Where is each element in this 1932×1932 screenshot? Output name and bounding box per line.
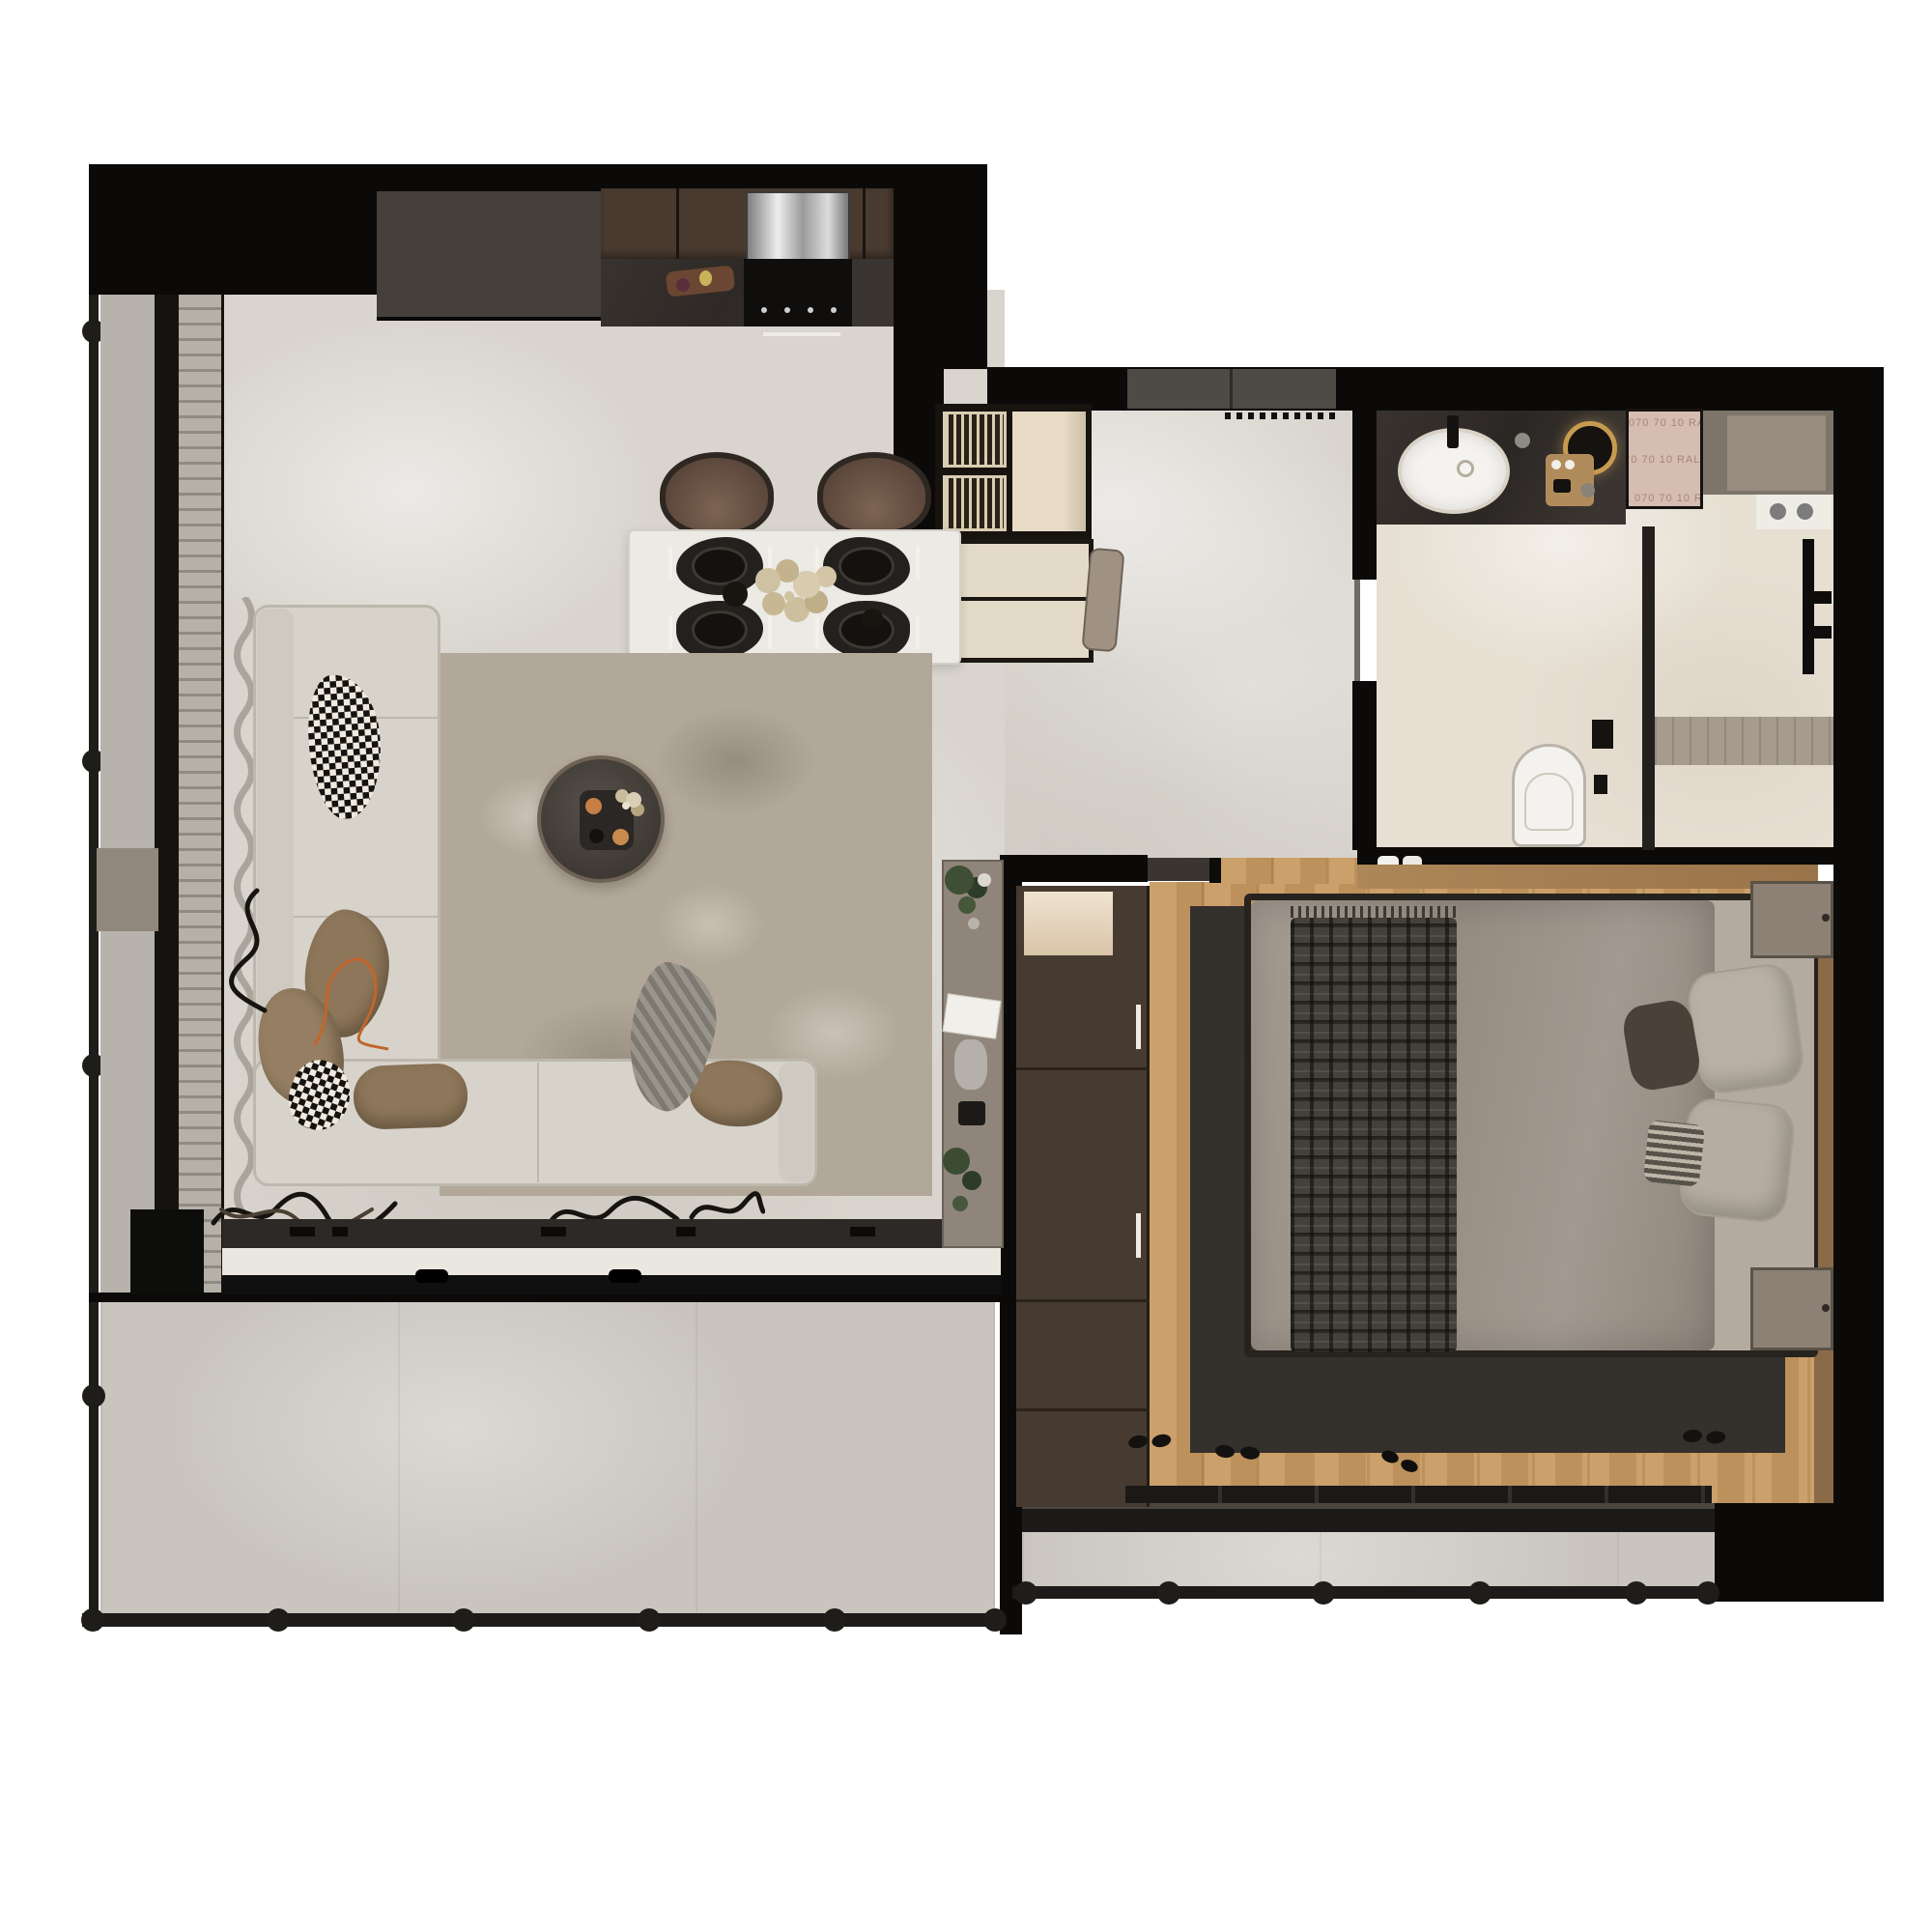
plant-leaves bbox=[945, 866, 974, 895]
left-window-sill bbox=[176, 295, 224, 1299]
cutlery bbox=[916, 616, 920, 649]
sofa-seat-seam bbox=[537, 1063, 539, 1182]
railing-post bbox=[267, 1608, 290, 1632]
counter-edge-line bbox=[763, 332, 840, 336]
shower-mixer-knob bbox=[1814, 626, 1832, 639]
black-tray bbox=[958, 1101, 985, 1125]
railing-post bbox=[1468, 1581, 1492, 1605]
cooktop-knob bbox=[808, 307, 813, 313]
terrace-floor bbox=[100, 1299, 995, 1618]
cooktop-knob bbox=[784, 307, 790, 313]
fruit-pear bbox=[699, 270, 712, 286]
sink-drain bbox=[1457, 460, 1474, 477]
cooktop bbox=[744, 259, 852, 327]
tan-bolster-pillow bbox=[353, 1063, 469, 1130]
orange-thread-decor bbox=[307, 949, 396, 1053]
cutlery bbox=[768, 616, 772, 649]
ral-label-row: RAL 070 70 10 RAL 070 70 10 bbox=[1626, 493, 1703, 504]
ral-label-row: RAL 070 70 10 RAL 070 70 10 bbox=[1626, 454, 1703, 466]
wardrobe bbox=[1016, 886, 1150, 1507]
range-hood bbox=[746, 191, 850, 261]
plate bbox=[692, 611, 748, 649]
console-base-object bbox=[415, 1269, 448, 1283]
railing-post bbox=[82, 1384, 105, 1407]
wardrobe-door-seam bbox=[1016, 1408, 1150, 1411]
plate bbox=[692, 547, 748, 585]
railing-post bbox=[638, 1608, 661, 1632]
sink-faucet bbox=[1447, 415, 1459, 448]
serving-bowl bbox=[862, 609, 883, 630]
console-object bbox=[850, 1227, 875, 1236]
left-bay-ledge bbox=[97, 848, 158, 931]
dining-chair bbox=[817, 452, 931, 537]
cosmetic-jar bbox=[1551, 460, 1561, 469]
wall-bedroom-north bbox=[1022, 855, 1148, 882]
railing-post bbox=[1312, 1581, 1335, 1605]
plaid-throw bbox=[1291, 918, 1457, 1352]
wall-top-left-corner bbox=[89, 164, 377, 295]
entry-doormat-dots bbox=[1225, 412, 1341, 419]
shower-column bbox=[1803, 539, 1814, 674]
cutlery bbox=[916, 547, 920, 580]
toilet-brush-holder bbox=[1592, 720, 1613, 749]
console-object bbox=[541, 1227, 566, 1236]
wall-bathroom-south bbox=[1357, 847, 1840, 865]
speaker-box bbox=[130, 1209, 204, 1294]
cutlery bbox=[815, 547, 819, 580]
plate bbox=[838, 547, 895, 585]
cooktop-knob bbox=[761, 307, 767, 313]
left-window-frame bbox=[155, 295, 176, 1299]
ral-swatch-panel: RAL 070 70 10 RAL 070 70 10 RAL 070 70 1… bbox=[1626, 409, 1703, 509]
shower-glass-partition bbox=[1642, 526, 1655, 850]
cutlery bbox=[768, 547, 772, 580]
wall-southeast-corner bbox=[1715, 1503, 1884, 1602]
toilet-sprayer bbox=[1594, 775, 1607, 794]
nightstand bbox=[1750, 1267, 1833, 1350]
kitchen-cabinet-divider bbox=[676, 188, 679, 259]
bedroom-balcony-railing bbox=[1012, 1586, 1718, 1599]
wall-bathroom-left-upper bbox=[1352, 411, 1377, 580]
fruit-plum bbox=[676, 278, 690, 292]
sliding-door-handle bbox=[1209, 858, 1221, 883]
plaid-throw-fringe bbox=[1291, 906, 1457, 918]
coffee-cup bbox=[585, 798, 602, 814]
utility-niche-inner bbox=[1727, 415, 1826, 491]
toilet-seat-line bbox=[1524, 773, 1574, 831]
kitchen-tall-cabinet bbox=[377, 191, 601, 321]
wall-right bbox=[1833, 411, 1884, 1546]
centerpiece-flowers bbox=[784, 591, 794, 601]
decor-dish bbox=[978, 873, 991, 887]
console-object bbox=[290, 1227, 315, 1236]
table-flowers bbox=[622, 802, 630, 810]
nightstand-handle bbox=[1822, 914, 1830, 922]
shoe-cabinet-slat-door bbox=[943, 475, 1007, 531]
railing-post bbox=[1625, 1581, 1648, 1605]
flush-button bbox=[1770, 503, 1786, 520]
ral-label-row: RAL 070 70 10 RAL 070 70 10 bbox=[1626, 417, 1703, 429]
serving-bowl bbox=[723, 582, 748, 607]
tv-bench bbox=[1125, 1486, 1712, 1503]
cutlery bbox=[668, 616, 672, 649]
railing-post bbox=[1157, 1581, 1180, 1605]
flush-plate bbox=[1756, 495, 1832, 529]
cooktop-knob bbox=[831, 307, 837, 313]
entry-door-seam bbox=[1230, 369, 1233, 409]
coffee-cup bbox=[612, 829, 629, 845]
flush-button bbox=[1797, 503, 1813, 520]
bathroom-glass-door bbox=[1354, 580, 1360, 681]
railing-post bbox=[452, 1608, 475, 1632]
cutlery bbox=[668, 547, 672, 580]
railing-post bbox=[823, 1608, 846, 1632]
wall-top-right-block bbox=[987, 367, 1884, 411]
soap-dispenser bbox=[1515, 433, 1530, 448]
cosmetic-jar bbox=[1565, 460, 1575, 469]
entry-bench bbox=[954, 539, 1094, 663]
shower-mixer-knob bbox=[1814, 591, 1832, 604]
dining-table bbox=[628, 529, 961, 665]
decor-dish bbox=[968, 918, 980, 929]
wardrobe-lighted-niche bbox=[1024, 892, 1113, 955]
decor-card bbox=[942, 993, 1001, 1038]
bedroom-door-opening-floor bbox=[1219, 858, 1357, 884]
bedroom-sliding-door bbox=[1148, 858, 1219, 881]
wall-bathroom-left-lower bbox=[1352, 681, 1377, 850]
dining-chair bbox=[660, 452, 774, 537]
console-base-object bbox=[609, 1269, 641, 1283]
wardrobe-handle bbox=[1136, 1213, 1141, 1258]
wardrobe-door-seam bbox=[1016, 1067, 1150, 1070]
bed-pillow bbox=[1685, 961, 1806, 1096]
wall-entry-left-upper bbox=[894, 164, 987, 369]
plant-leaves bbox=[943, 1148, 970, 1175]
cutlery bbox=[815, 616, 819, 649]
nightstand bbox=[1750, 881, 1833, 958]
railing-post bbox=[983, 1608, 1007, 1632]
entry-bench-shelf-line bbox=[959, 597, 1089, 601]
console-object bbox=[332, 1227, 348, 1236]
headboard-wood-ledge bbox=[1357, 865, 1818, 889]
dried-branch-decor bbox=[218, 887, 288, 1014]
perfume-bottle bbox=[1553, 479, 1571, 493]
railing-post bbox=[1696, 1581, 1719, 1605]
striped-pillow bbox=[1643, 1120, 1705, 1187]
nightstand-handle bbox=[1822, 1304, 1830, 1312]
kitchen-cabinet-divider bbox=[863, 188, 866, 259]
railing-post bbox=[1014, 1581, 1037, 1605]
teapot-black bbox=[589, 829, 604, 843]
shower-tray bbox=[1655, 717, 1833, 765]
terrace-railing bbox=[82, 1613, 1002, 1627]
left-walkway bbox=[100, 295, 155, 1299]
vanity-bowl bbox=[1580, 483, 1595, 497]
railing-post bbox=[81, 1608, 104, 1632]
floor-plan: RAL 070 70 10 RAL 070 70 10 RAL 070 70 1… bbox=[0, 0, 1932, 1932]
console-object bbox=[676, 1227, 696, 1236]
wardrobe-handle bbox=[1136, 1005, 1141, 1049]
shoe-cabinet-slat-door bbox=[943, 412, 1007, 468]
glass-vase bbox=[954, 1039, 987, 1090]
bedroom-balcony-floor bbox=[1022, 1531, 1717, 1589]
entry-open-shelf bbox=[1012, 412, 1086, 531]
wardrobe-door-seam bbox=[1016, 1299, 1150, 1302]
sofa-back-cushion-band bbox=[779, 1063, 813, 1182]
